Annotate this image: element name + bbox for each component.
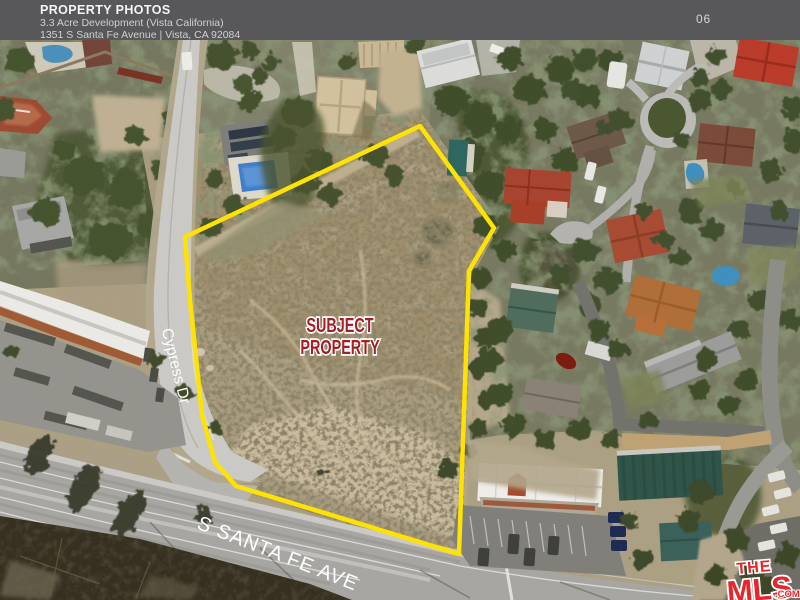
svg-text:PROPERTY: PROPERTY: [300, 336, 379, 359]
svg-text:06: 06: [696, 12, 711, 26]
svg-text:PROPERTY PHOTOS: PROPERTY PHOTOS: [40, 3, 171, 17]
svg-text:SUBJECT: SUBJECT: [306, 314, 373, 337]
svg-text:1351 S Santa Fe Avenue | Vista: 1351 S Santa Fe Avenue | Vista, CA 92084: [40, 29, 240, 41]
svg-text:3.3 Acre Development (Vista Ca: 3.3 Acre Development (Vista California): [40, 17, 224, 29]
svg-text:.COM: .COM: [775, 589, 800, 600]
